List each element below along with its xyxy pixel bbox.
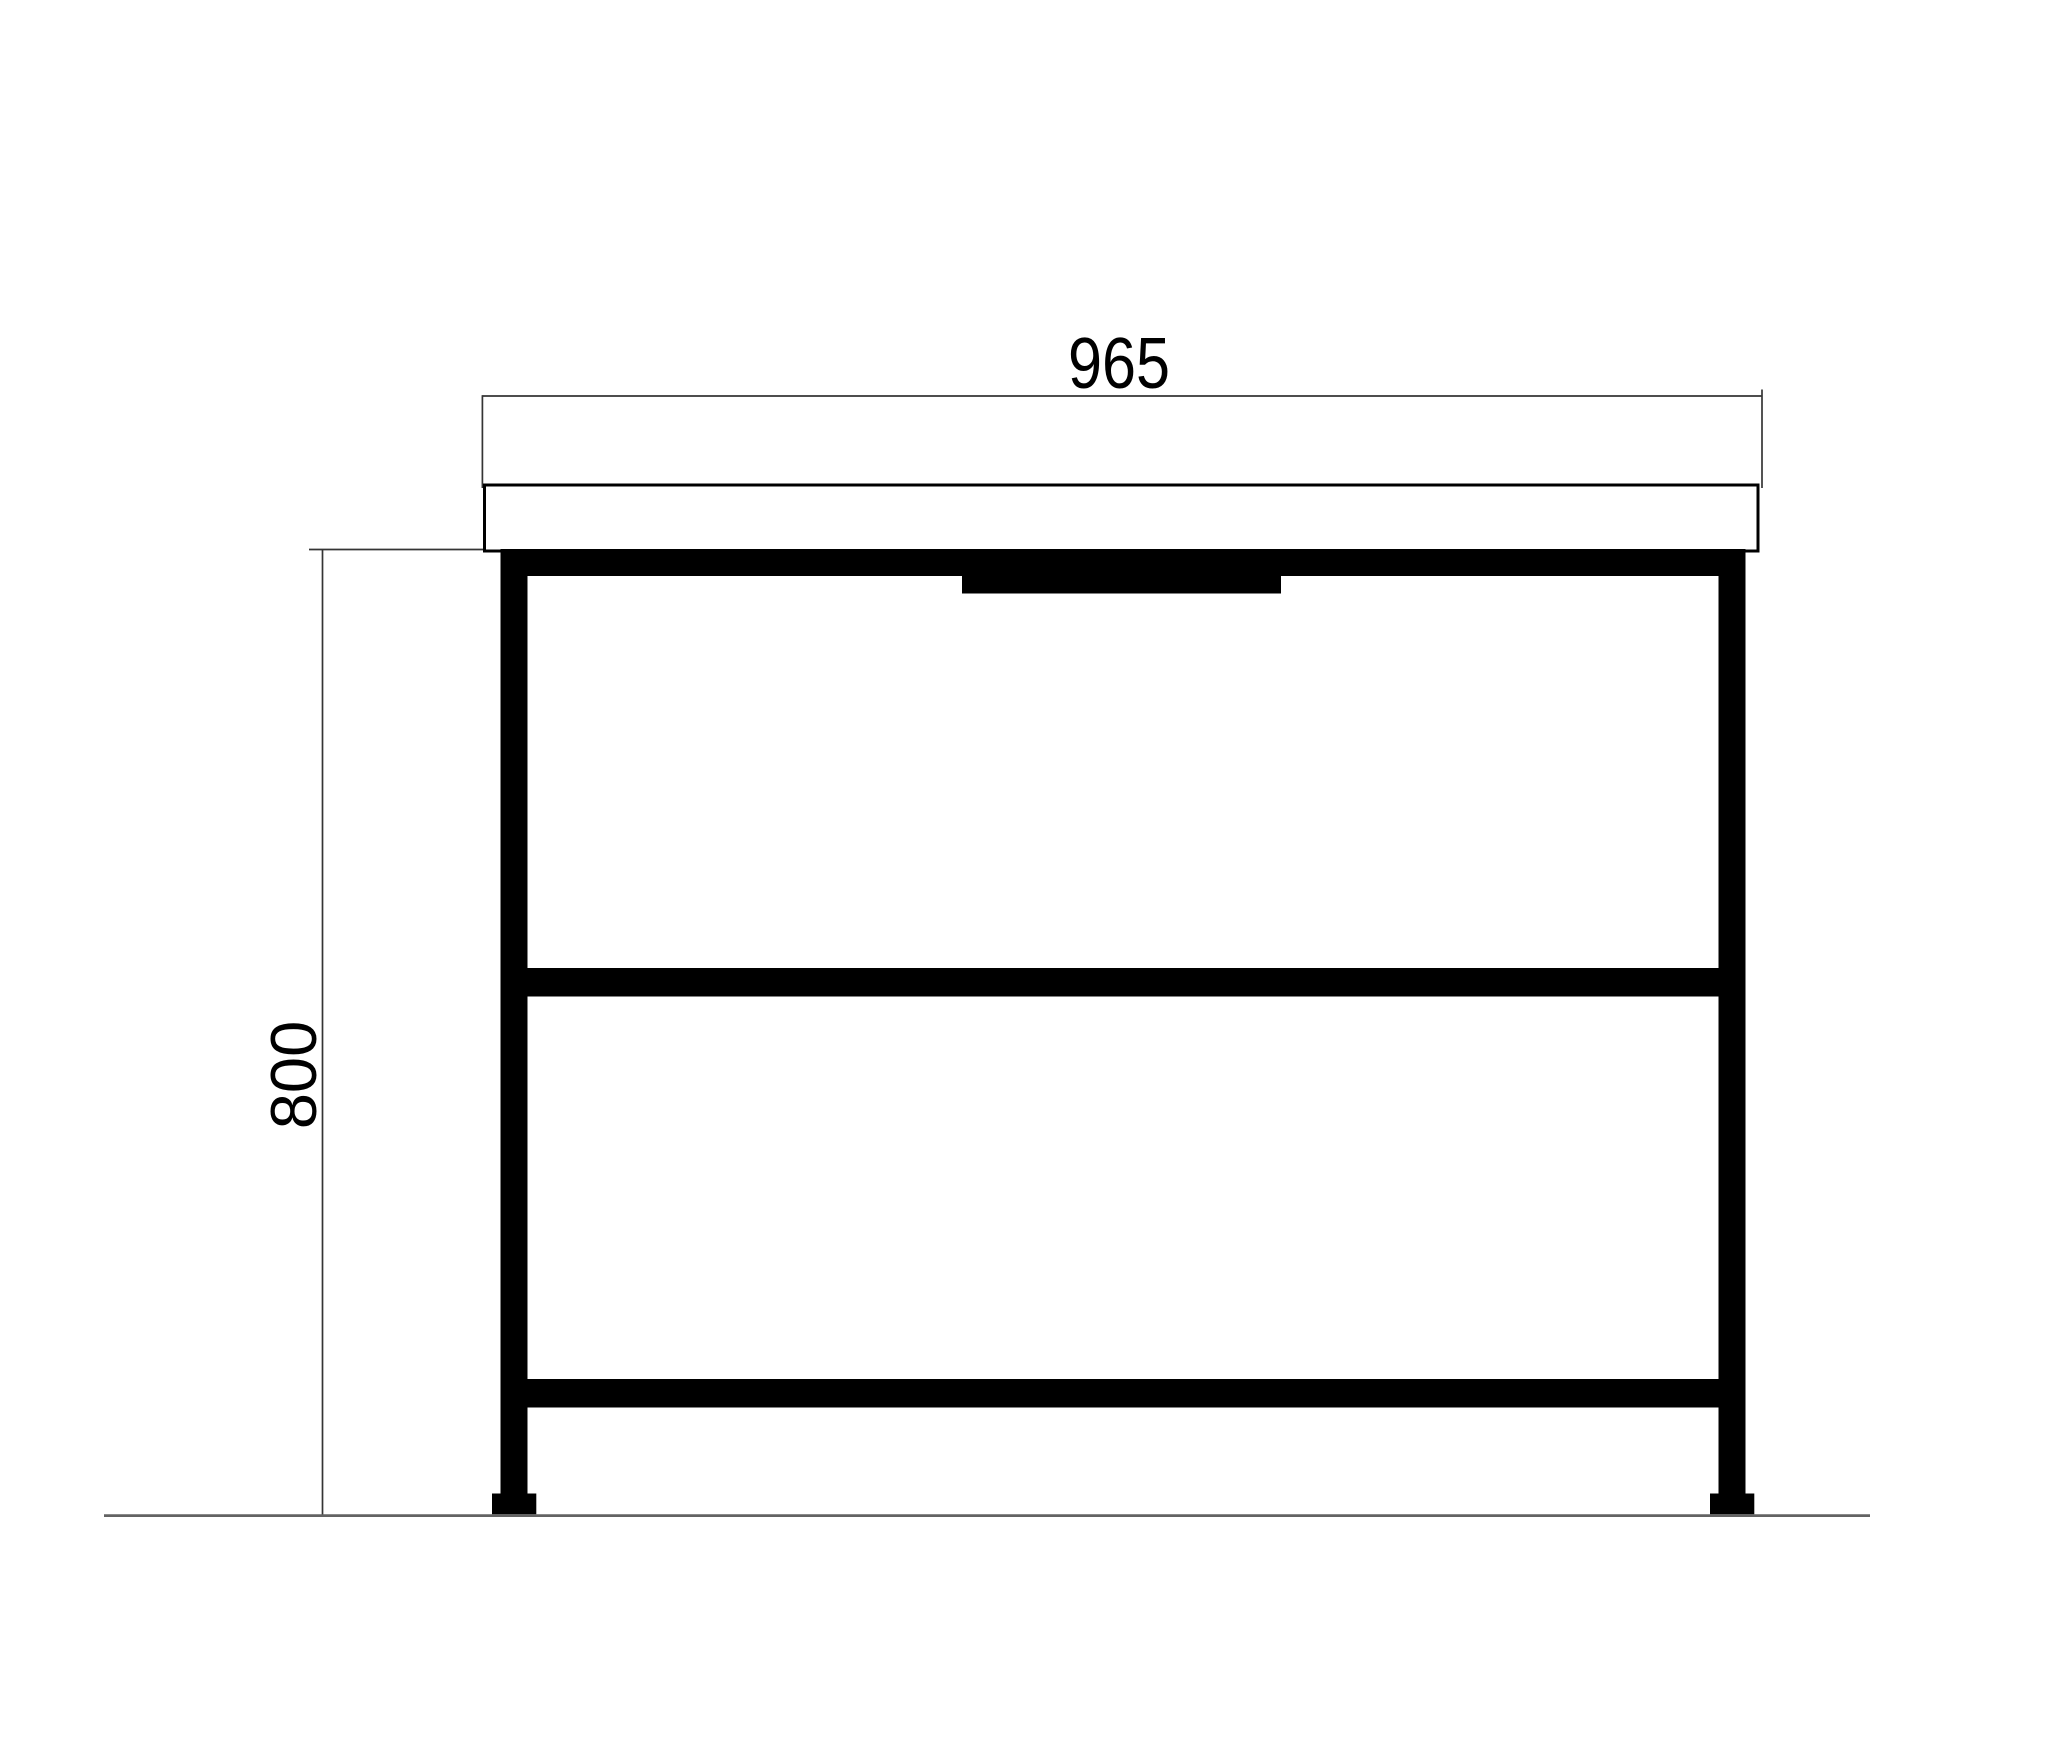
svg-text:800: 800 (257, 1021, 330, 1129)
svg-text:965: 965 (1068, 324, 1170, 404)
